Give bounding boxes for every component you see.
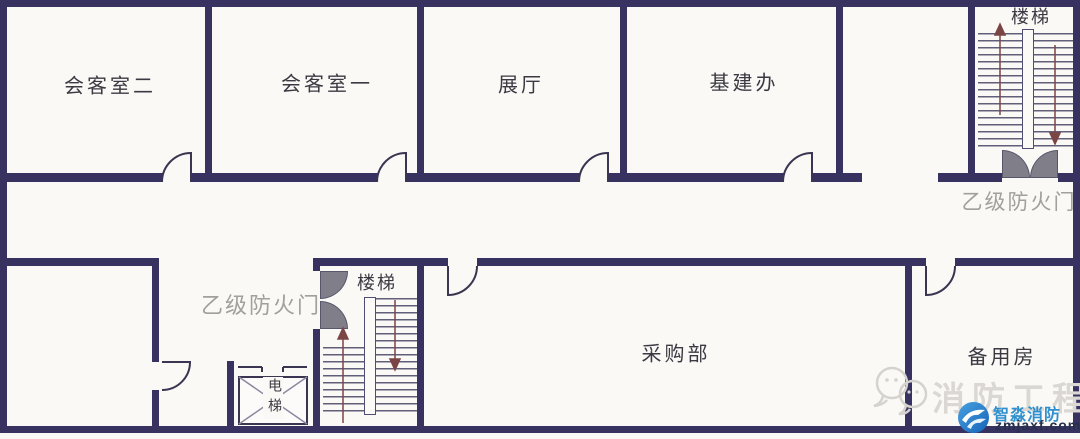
room-label-purchasing-dept: 采购部 — [642, 338, 711, 367]
elevator-label: 电梯 — [263, 377, 283, 419]
fire-door-label-middle: 乙级防火门 — [201, 288, 321, 320]
room-label-spare-room: 备用房 — [968, 341, 1037, 370]
door-swing-exhibition-hall — [579, 153, 608, 182]
fire-door-label-top-right: 乙级防火门 — [962, 186, 1077, 216]
stairs-label-middle: 楼梯 — [357, 269, 397, 295]
room-label-infrastructure-office: 基建办 — [710, 67, 779, 96]
door-swing-meeting-room-2 — [162, 153, 191, 182]
room-label-meeting-room-2: 会客室二 — [64, 70, 156, 99]
down-arrow-icon — [390, 359, 400, 370]
stairs-label-top-right: 楼梯 — [1011, 3, 1051, 29]
brand-domain: zmjaxf.com — [995, 417, 1080, 433]
up-arrow-icon — [995, 24, 1005, 35]
door-swing-storage-room — [162, 362, 190, 390]
door-swing-meeting-room-1 — [377, 153, 406, 182]
door-swing-purchasing-dept — [448, 266, 477, 295]
down-arrow-icon — [1050, 133, 1060, 144]
door-swing-infrastructure-office — [783, 153, 812, 182]
brand-logo-icon — [957, 401, 990, 434]
room-label-exhibition-hall: 展厅 — [498, 69, 544, 98]
floor-plan: 会客室二 会客室一 展厅 基建办 采购部 备用房 楼梯 楼梯 乙级防火门 乙级防… — [0, 0, 1080, 439]
up-arrow-icon — [338, 328, 348, 339]
door-swing-spare-room — [926, 266, 955, 295]
wechat-bubbles-icon — [862, 362, 942, 420]
room-label-meeting-room-1: 会客室一 — [281, 68, 373, 97]
elevator-door-marks — [238, 367, 307, 372]
